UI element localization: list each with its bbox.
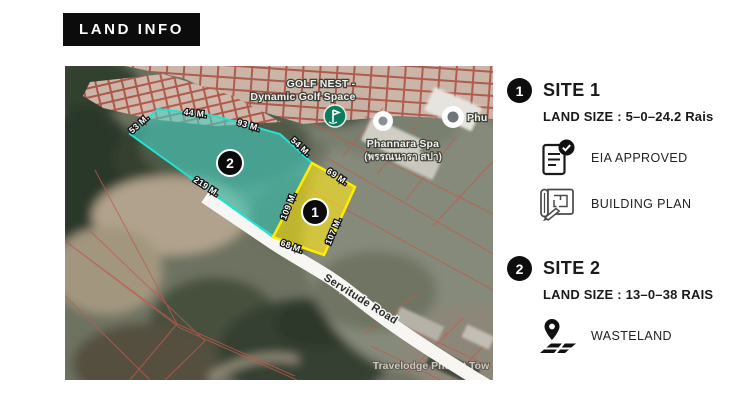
- phu-pin-icon: [442, 106, 464, 128]
- wasteland-icon: [538, 317, 578, 355]
- site1-title: SITE 1: [543, 80, 600, 101]
- site1-feature-eia-label: EIA APPROVED: [591, 151, 688, 165]
- land-info-header: LAND INFO: [63, 13, 200, 46]
- site1-badge: 1: [507, 78, 532, 103]
- poi-golf-label-line1: GOLF NEST -: [287, 78, 356, 90]
- site1-feature-building-plan: BUILDING PLAN: [538, 184, 747, 224]
- land-info-slide: LAND INFO: [0, 0, 750, 420]
- map-badge-site2-number: 2: [226, 155, 234, 171]
- site2-badge: 2: [507, 256, 532, 281]
- map-badge-site2: 2: [217, 150, 243, 176]
- satellite-map: Travelodge Phuket Tow Servitude Road 53 …: [65, 66, 493, 380]
- site1-section: 1 SITE 1 LAND SIZE : 5–0–24.2 Rais: [507, 78, 747, 224]
- site1-land-size: LAND SIZE : 5–0–24.2 Rais: [543, 109, 747, 124]
- map-badge-site1: 1: [302, 199, 328, 225]
- site2-feature-wasteland-label: WASTELAND: [591, 329, 672, 343]
- site-info-panel: 1 SITE 1 LAND SIZE : 5–0–24.2 Rais: [507, 78, 747, 408]
- page-title: LAND INFO: [79, 21, 184, 38]
- poi-spa-label-line1: Phannara Spa: [367, 138, 439, 150]
- eia-approved-icon: [538, 139, 578, 177]
- poi-phu-label: Phu: [467, 112, 487, 124]
- site2-section: 2 SITE 2 LAND SIZE : 13–0–38 RAIS: [507, 256, 747, 356]
- map-terrain: Travelodge Phuket Tow Servitude Road 53 …: [65, 66, 493, 380]
- site2-feature-wasteland: WASTELAND: [538, 316, 747, 356]
- spa-pin-icon: [373, 111, 393, 131]
- building-plan-icon: [538, 186, 578, 222]
- map-badge-site1-number: 1: [311, 204, 319, 220]
- golf-pin-icon: [324, 105, 346, 127]
- site1-feature-eia: EIA APPROVED: [538, 138, 747, 178]
- site1-feature-building-plan-label: BUILDING PLAN: [591, 197, 691, 211]
- poi-golf-label-line2: Dynamic Golf Space: [250, 91, 355, 103]
- site2-title: SITE 2: [543, 258, 600, 279]
- site2-land-size: LAND SIZE : 13–0–38 RAIS: [543, 287, 747, 302]
- poi-spa-label-line2: (พรรณนารา สปา): [364, 151, 442, 163]
